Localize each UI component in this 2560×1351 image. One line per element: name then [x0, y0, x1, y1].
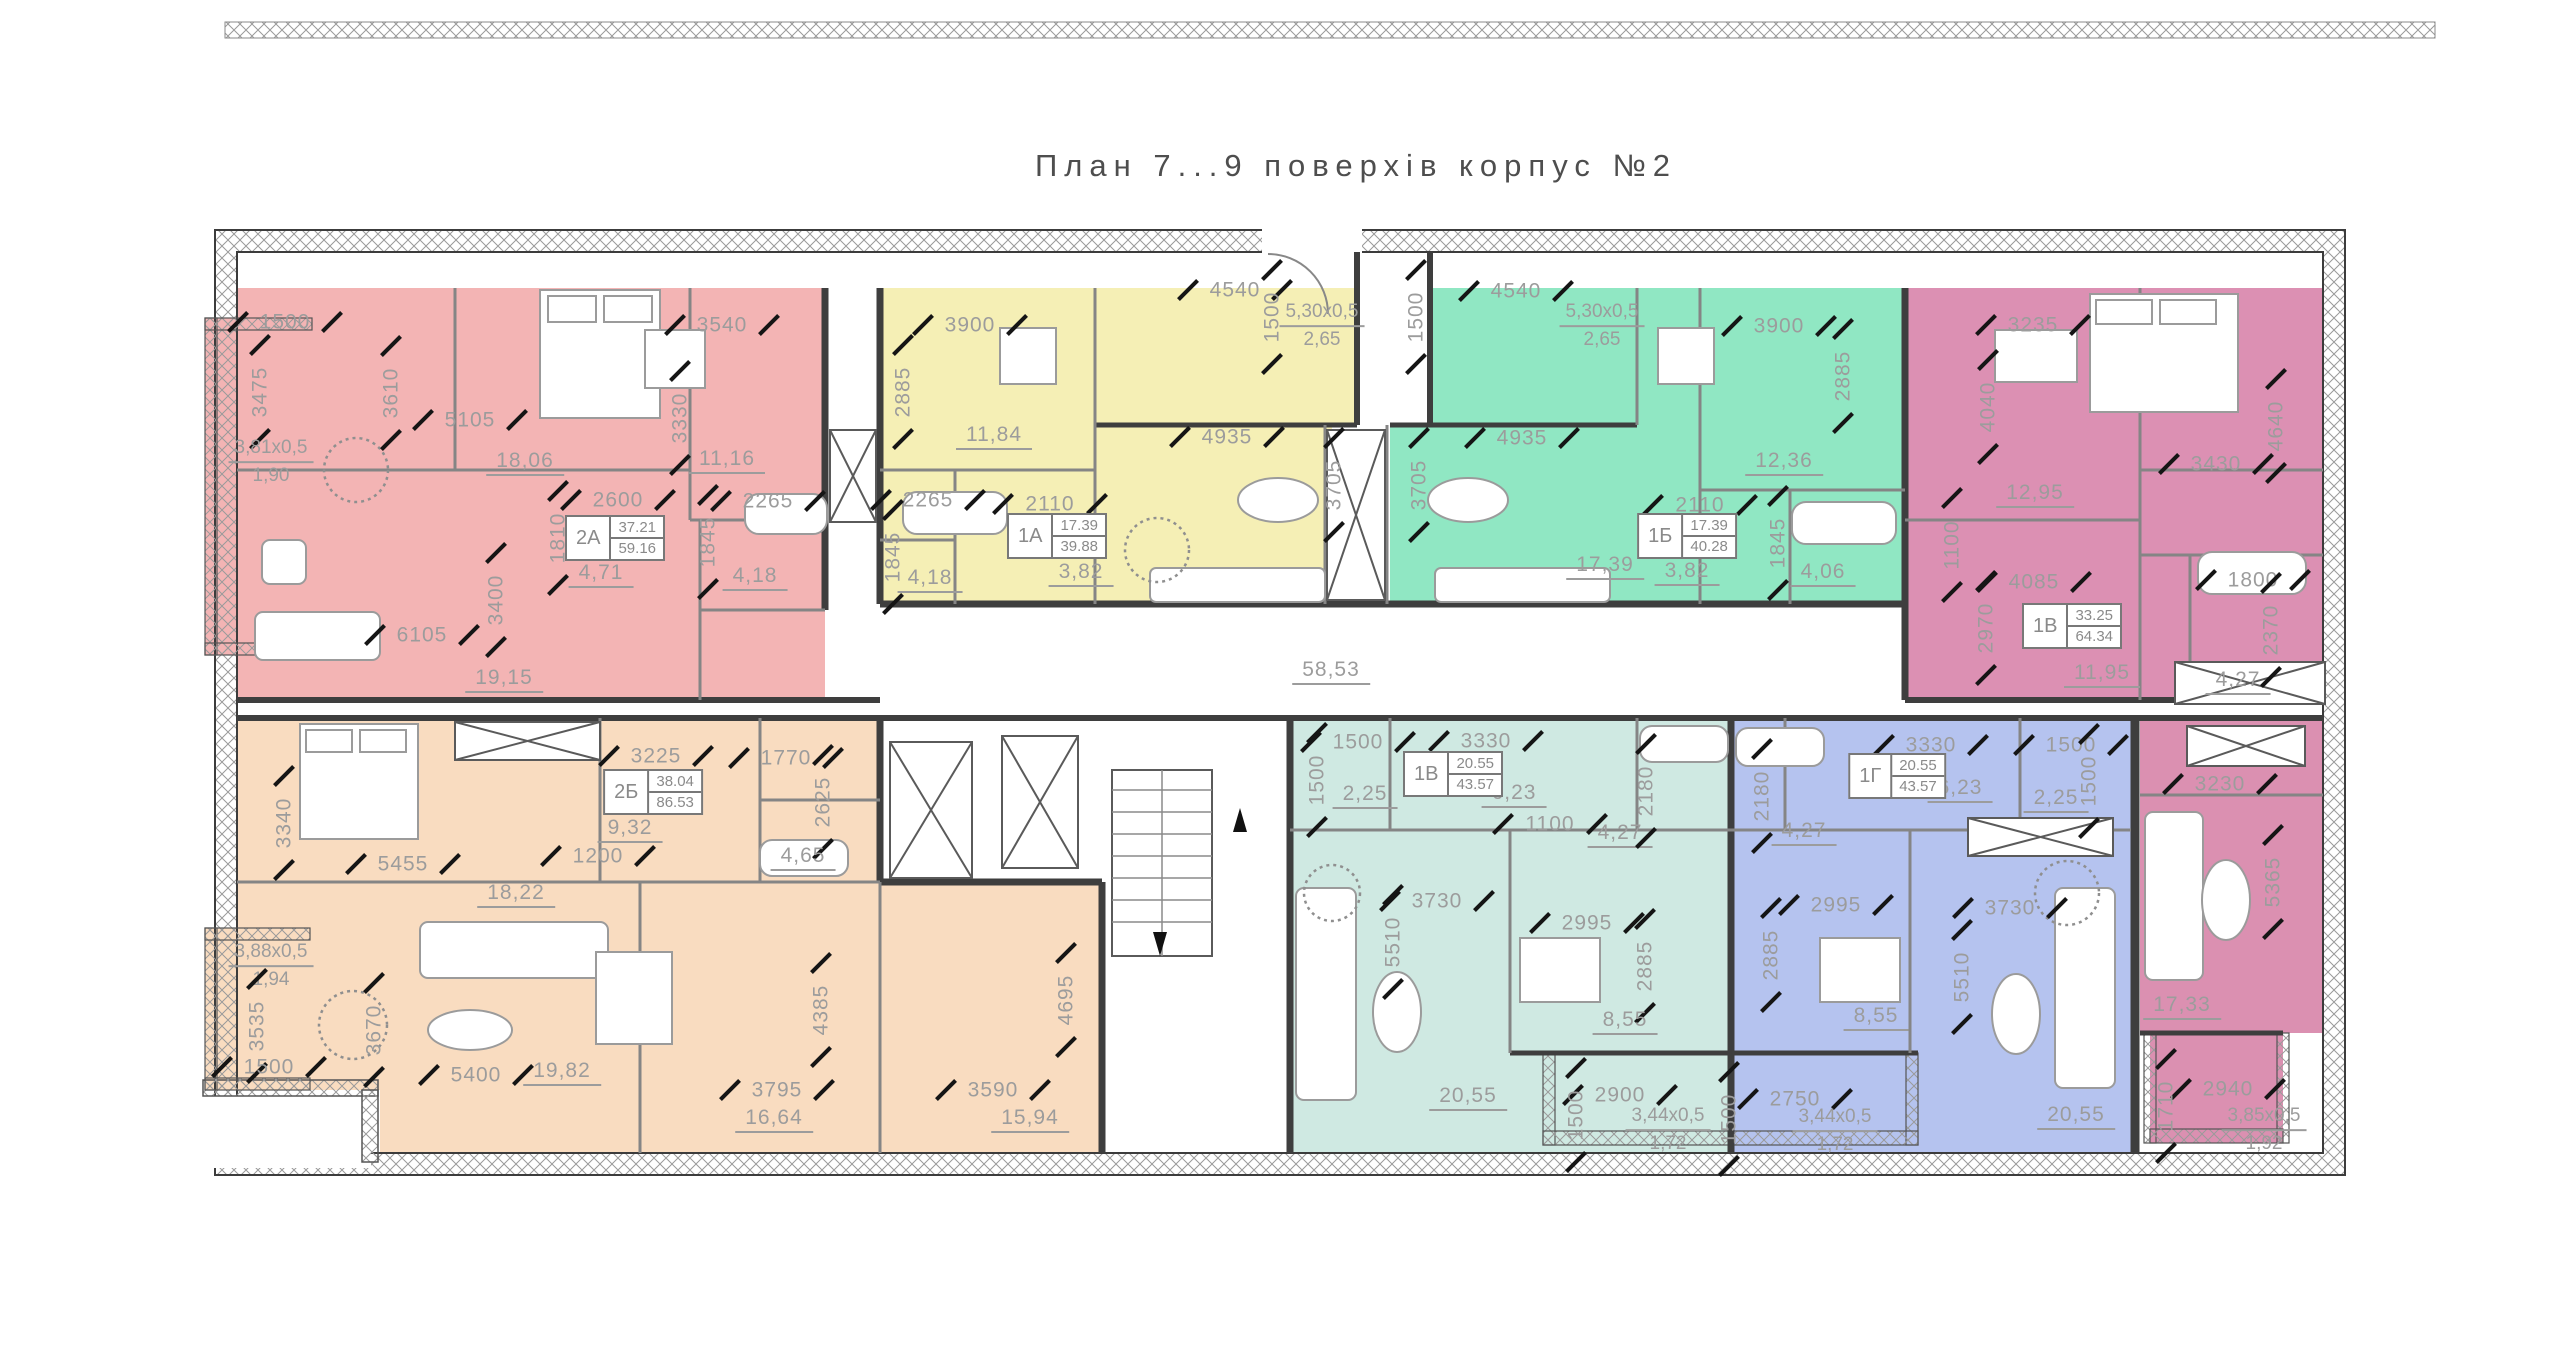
- dimension-label: 5510: [1952, 952, 1973, 1003]
- dimension-tick: [547, 480, 569, 502]
- dimension-tick: [1405, 259, 1427, 281]
- dimension-tick: [1323, 521, 1345, 543]
- dimension-tick: [634, 845, 656, 867]
- dimension-label: 5105: [445, 410, 496, 431]
- room-area-label: 4,18: [723, 565, 788, 591]
- dimension-tick: [598, 745, 620, 767]
- dimension-label: 2885: [1833, 351, 1854, 402]
- dimension-label: 3535: [247, 1001, 268, 1052]
- dimension-label: 2265: [743, 491, 794, 512]
- dimension-tick: [1263, 426, 1285, 448]
- dimension-tick: [912, 314, 934, 336]
- living-area-value: 17.39: [1683, 515, 1735, 537]
- apartment-tag-apt-2a: 2А37.2159.16: [565, 515, 665, 561]
- dimension-tick: [813, 1079, 835, 1101]
- dimension-tick: [249, 334, 271, 356]
- apartment-code: 1А: [1009, 515, 1051, 557]
- dimension-tick: [870, 489, 892, 511]
- total-area-value: 40.28: [1683, 537, 1735, 557]
- dimension-tick: [810, 952, 832, 974]
- dimension-label: 3730: [1412, 891, 1463, 912]
- living-area-value: 20.55: [1449, 753, 1501, 775]
- dimension-tick: [1408, 521, 1430, 543]
- dimension-tick: [1736, 494, 1758, 516]
- dimension-tick: [1169, 426, 1191, 448]
- dimension-label: 3540: [697, 315, 748, 336]
- dimension-tick: [1558, 427, 1580, 449]
- dimension-tick: [2264, 1078, 2286, 1100]
- dimension-tick: [1941, 487, 1963, 509]
- dimension-label: 1845: [698, 517, 719, 568]
- dimension-label: 2900: [1595, 1085, 1646, 1106]
- room-area-label: 18,22: [477, 882, 555, 908]
- dimension-tick: [1473, 890, 1495, 912]
- dimension-label: 2970: [1976, 603, 1997, 654]
- dimension-tick: [669, 360, 691, 382]
- dimension-tick: [1751, 832, 1773, 854]
- dimension-tick: [2155, 1142, 2177, 1164]
- dimension-tick: [1767, 579, 1789, 601]
- dimension-tick: [2262, 824, 2284, 846]
- dimension-tick: [1718, 1061, 1740, 1083]
- dimension-tick: [1952, 897, 1974, 919]
- dimension-tick: [1977, 443, 1999, 465]
- dimension-tick: [1382, 884, 1404, 906]
- total-area-value: 43.57: [1449, 775, 1501, 795]
- room-area-label: 17,39: [1566, 554, 1644, 580]
- dimension-label: 1500: [260, 312, 311, 333]
- dimension-tick: [2070, 571, 2092, 593]
- dimension-tick: [364, 624, 386, 646]
- dimension-tick: [1832, 412, 1854, 434]
- dimension-label: 2940: [2203, 1079, 2254, 1100]
- room-area-label: 4,18: [898, 567, 963, 593]
- dimension-label: 4540: [1491, 281, 1542, 302]
- dimension-tick: [692, 745, 714, 767]
- dimension-label: 1500: [1719, 1094, 1740, 1145]
- room-area-label: 11,95: [2064, 662, 2140, 688]
- dimension-tick: [2256, 773, 2278, 795]
- dimension-tick: [719, 1079, 741, 1101]
- dimension-tick: [1382, 978, 1404, 1000]
- dimension-label: 3900: [1754, 316, 1805, 337]
- dimension-tick: [1656, 1084, 1678, 1106]
- dimension-label: 4385: [811, 985, 832, 1036]
- dimension-tick: [710, 490, 732, 512]
- room-area-label: 4,27: [1772, 820, 1837, 846]
- dimension-tick: [1778, 894, 1800, 916]
- dimension-tick: [964, 489, 986, 511]
- dimension-tick: [439, 853, 461, 875]
- dimension-tick: [273, 765, 295, 787]
- dimension-tick: [1751, 738, 1773, 760]
- room-area-label: 4,27: [2206, 669, 2271, 695]
- apartment-code: 1Г: [1850, 755, 1890, 797]
- room-area-label: 58,53: [1292, 659, 1370, 685]
- dimension-tick: [547, 574, 569, 596]
- apartment-code: 1В: [2024, 605, 2066, 647]
- dimension-label: 3225: [631, 746, 682, 767]
- living-area-value: 33.25: [2068, 605, 2120, 627]
- dimension-tick: [1006, 314, 1028, 336]
- dimension-label: 3230: [2195, 774, 2246, 795]
- dimension-label: 1500: [1307, 755, 1328, 806]
- living-area-value: 17.39: [1053, 515, 1105, 537]
- dimension-tick: [1086, 493, 1108, 515]
- dimension-tick: [560, 489, 582, 511]
- dimension-tick: [412, 409, 434, 431]
- dimension-tick: [363, 1066, 385, 1088]
- dimension-label: 3610: [381, 368, 402, 419]
- room-area-label: 17,33: [2143, 994, 2221, 1020]
- dimension-tick: [1177, 279, 1199, 301]
- dimension-label: 2265: [903, 490, 954, 511]
- dimension-tick: [1055, 1036, 1077, 1058]
- dimension-label: 2885: [1761, 930, 1782, 981]
- dimension-labels-layer: 150034753,81х0,51,903610510518,062600181…: [0, 0, 2560, 1351]
- dimension-tick: [1951, 1013, 1973, 1035]
- dimension-label: 2600: [593, 490, 644, 511]
- dimension-tick: [418, 1064, 440, 1086]
- dimension-tick: [664, 314, 686, 336]
- room-area-label: 19,82: [523, 1060, 601, 1086]
- dimension-label: 3475: [250, 367, 271, 418]
- dimension-tick: [1306, 816, 1328, 838]
- room-area-label: 4,65: [771, 845, 836, 871]
- dimension-label: 2885: [893, 367, 914, 418]
- apartment-tag-apt-1vc: 1В20.5543.57: [1403, 751, 1503, 797]
- room-area-label: 12,95: [1996, 482, 2074, 508]
- dimension-tick: [1975, 664, 1997, 686]
- room-area-label: 4,71: [569, 562, 634, 588]
- balcony-area-label: 3,44х0,51,72: [1793, 1106, 1878, 1156]
- room-area-label: 3,82: [1049, 561, 1114, 587]
- room-area-label: 8,55: [1593, 1009, 1658, 1035]
- dimension-tick: [1941, 581, 1963, 603]
- room-area-label: 4,06: [1791, 561, 1856, 587]
- dimension-tick: [1394, 731, 1416, 753]
- dimension-tick: [2252, 453, 2274, 475]
- dimension-tick: [1529, 912, 1551, 934]
- dimension-label: 2180: [1752, 771, 1773, 822]
- dimension-label: 1200: [573, 846, 624, 867]
- dimension-label: 4640: [2266, 401, 2287, 452]
- room-area-label: 8,55: [1844, 1005, 1909, 1031]
- dimension-tick: [380, 335, 402, 357]
- dimension-tick: [227, 311, 249, 333]
- room-area-label: 2,25: [1333, 783, 1398, 809]
- dimension-tick: [1261, 353, 1283, 375]
- balcony-area-label: 5,30х0,52,65: [1560, 301, 1645, 351]
- dimension-label: 2995: [1562, 913, 1613, 934]
- dimension-tick: [363, 972, 385, 994]
- floor-plan-page: План 7...9 поверхів корпус №2: [0, 0, 2560, 1351]
- dimension-label: 3705: [1324, 460, 1345, 511]
- dimension-tick: [321, 311, 343, 333]
- dimension-label: 1770: [761, 748, 812, 769]
- balcony-area-label: 3,88х0,51,94: [229, 941, 314, 991]
- dimension-label: 1100: [1942, 520, 1963, 569]
- dimension-label: 3340: [274, 798, 295, 849]
- dimension-tick: [2013, 734, 2035, 756]
- room-area-label: 18,06: [486, 450, 564, 476]
- dimension-label: 4085: [2009, 572, 2060, 593]
- dimension-label: 1500: [1406, 292, 1427, 343]
- apartment-tag-apt-1b: 1Б17.3940.28: [1637, 513, 1737, 559]
- dimension-label: 5455: [378, 854, 429, 875]
- dimension-tick: [273, 859, 295, 881]
- balcony-area-label: 3,44х0,51,72: [1626, 1105, 1711, 1155]
- dimension-label: 3430: [2191, 454, 2242, 475]
- dimension-tick: [1522, 730, 1544, 752]
- room-area-label: 20,55: [1429, 1085, 1507, 1111]
- room-area-label: 2,25: [2024, 787, 2089, 813]
- dimension-tick: [2162, 773, 2184, 795]
- dimension-label: 2995: [1811, 895, 1862, 916]
- dimension-label: 3235: [2008, 315, 2059, 336]
- dimension-tick: [305, 1056, 327, 1078]
- dimension-tick: [211, 1056, 233, 1078]
- dimension-tick: [1721, 315, 1743, 337]
- dimension-tick: [1872, 894, 1894, 916]
- dimension-label: 3330: [670, 393, 691, 444]
- dimension-label: 3330: [1461, 731, 1512, 752]
- total-area-value: 64.34: [2068, 627, 2120, 647]
- dimension-label: 1500: [244, 1057, 295, 1078]
- total-area-value: 59.16: [611, 539, 663, 559]
- dimension-tick: [882, 499, 904, 521]
- apartment-code: 1Б: [1639, 515, 1681, 557]
- dimension-label: 2110: [1025, 494, 1074, 515]
- dimension-tick: [540, 845, 562, 867]
- dimension-label: 3670: [364, 1005, 385, 1056]
- dimension-tick: [1552, 280, 1574, 302]
- dimension-tick: [2265, 368, 2287, 390]
- dimension-tick: [892, 334, 914, 356]
- dimension-tick: [697, 578, 719, 600]
- dimension-tick: [1967, 734, 1989, 756]
- dimension-tick: [2289, 569, 2311, 591]
- dimension-tick: [2155, 1048, 2177, 1070]
- living-area-value: 38.04: [649, 771, 701, 793]
- dimension-tick: [1565, 1057, 1587, 1079]
- dimension-tick: [1029, 1079, 1051, 1101]
- dimension-label: 1500: [2046, 735, 2097, 756]
- dimension-label: 5400: [451, 1065, 502, 1086]
- dimension-label: 6105: [397, 625, 448, 646]
- apartment-tag-apt-2b: 2Б38.0486.53: [603, 769, 703, 815]
- dimension-label: 4040: [1978, 382, 1999, 433]
- room-area-label: 16,64: [735, 1107, 813, 1133]
- dimension-tick: [1760, 897, 1782, 919]
- apartment-code: 2Б: [605, 771, 647, 813]
- total-area-value: 86.53: [649, 793, 701, 813]
- dimension-tick: [2078, 817, 2100, 839]
- dimension-tick: [485, 636, 507, 658]
- room-area-label: 20,55: [2037, 1104, 2115, 1130]
- dimension-label: 3730: [1985, 898, 2036, 919]
- dimension-tick: [1718, 1155, 1740, 1177]
- dimension-tick: [1832, 318, 1854, 340]
- total-area-value: 43.57: [1892, 777, 1944, 797]
- dimension-label: 4695: [1056, 975, 1077, 1026]
- dimension-tick: [2195, 569, 2217, 591]
- dimension-label: 1100: [1525, 814, 1574, 835]
- living-area-value: 20.55: [1892, 755, 1944, 777]
- dimension-label: 2180: [1636, 766, 1657, 817]
- dimension-label: 3705: [1409, 460, 1430, 511]
- dimension-label: 2885: [1635, 941, 1656, 992]
- dimension-tick: [2069, 314, 2091, 336]
- dimension-tick: [345, 853, 367, 875]
- dimension-tick: [1408, 427, 1430, 449]
- dimension-tick: [882, 593, 904, 615]
- dimension-label: 1710: [2156, 1081, 2177, 1132]
- dimension-label: 3400: [486, 575, 507, 626]
- room-area-label: 3,82: [1655, 560, 1720, 586]
- apartment-tag-apt-1v: 1В33.2564.34: [2022, 603, 2122, 649]
- dimension-label: 1500: [1333, 732, 1384, 753]
- room-area-label: 15,94: [991, 1107, 1069, 1133]
- dimension-tick: [728, 747, 750, 769]
- dimension-tick: [2262, 918, 2284, 940]
- dimension-tick: [758, 314, 780, 336]
- dimension-tick: [1405, 353, 1427, 375]
- dimension-label: 4540: [1210, 280, 1261, 301]
- dimension-tick: [1464, 427, 1486, 449]
- balcony-area-label: 3,85х0,51,92: [2222, 1105, 2307, 1155]
- dimension-tick: [1977, 349, 1999, 371]
- dimension-label: 1845: [1768, 518, 1789, 569]
- dimension-tick: [1323, 427, 1345, 449]
- dimension-tick: [810, 1046, 832, 1068]
- dimension-label: 4935: [1497, 428, 1548, 449]
- dimension-tick: [654, 489, 676, 511]
- dimension-tick: [506, 409, 528, 431]
- dimension-label: 3900: [945, 315, 996, 336]
- room-area-label: 9,32: [598, 817, 663, 843]
- balcony-area-label: 5,30х0,52,65: [1280, 301, 1365, 351]
- living-area-value: 37.21: [611, 517, 663, 539]
- dimension-tick: [1767, 485, 1789, 507]
- dimension-tick: [1428, 730, 1450, 752]
- dimension-tick: [1306, 722, 1328, 744]
- dimension-tick: [2265, 462, 2287, 484]
- dimension-label: 3795: [752, 1080, 803, 1101]
- dimension-tick: [1458, 280, 1480, 302]
- apartment-code: 1В: [1405, 753, 1447, 795]
- dimension-tick: [935, 1079, 957, 1101]
- dimension-tick: [1261, 259, 1283, 281]
- dimension-label: 5365: [2263, 857, 2284, 908]
- dimension-tick: [485, 542, 507, 564]
- apartment-tag-apt-1g: 1Г20.5543.57: [1848, 753, 1946, 799]
- dimension-tick: [1975, 314, 1997, 336]
- dimension-tick: [1492, 813, 1514, 835]
- room-area-label: 12,36: [1745, 450, 1823, 476]
- apartment-tag-apt-1a: 1А17.3939.88: [1007, 513, 1107, 559]
- dimension-label: 3590: [968, 1080, 1019, 1101]
- dimension-label: 4935: [1202, 427, 1253, 448]
- dimension-tick: [2107, 734, 2129, 756]
- room-area-label: 19,15: [465, 667, 543, 693]
- dimension-label: 2625: [813, 777, 834, 828]
- total-area-value: 39.88: [1053, 537, 1105, 557]
- dimension-label: 2370: [2261, 605, 2282, 656]
- dimension-tick: [1055, 942, 1077, 964]
- dimension-tick: [892, 428, 914, 450]
- room-area-label: 11,16: [689, 448, 765, 474]
- dimension-tick: [992, 493, 1014, 515]
- balcony-area-label: 3,81х0,51,90: [229, 437, 314, 487]
- dimension-label: 1500: [1566, 1090, 1587, 1141]
- dimension-tick: [2046, 897, 2068, 919]
- dimension-tick: [1760, 991, 1782, 1013]
- dimension-tick: [669, 454, 691, 476]
- dimension-tick: [458, 624, 480, 646]
- dimension-tick: [1565, 1151, 1587, 1173]
- dimension-tick: [1635, 733, 1657, 755]
- dimension-tick: [1975, 570, 1997, 592]
- apartment-code: 2А: [567, 517, 609, 559]
- room-area-label: 11,84: [956, 424, 1032, 450]
- dimension-label: 5510: [1383, 917, 1404, 968]
- dimension-tick: [380, 429, 402, 451]
- dimension-tick: [2158, 453, 2180, 475]
- dimension-tick: [804, 490, 826, 512]
- dimension-tick: [1951, 919, 1973, 941]
